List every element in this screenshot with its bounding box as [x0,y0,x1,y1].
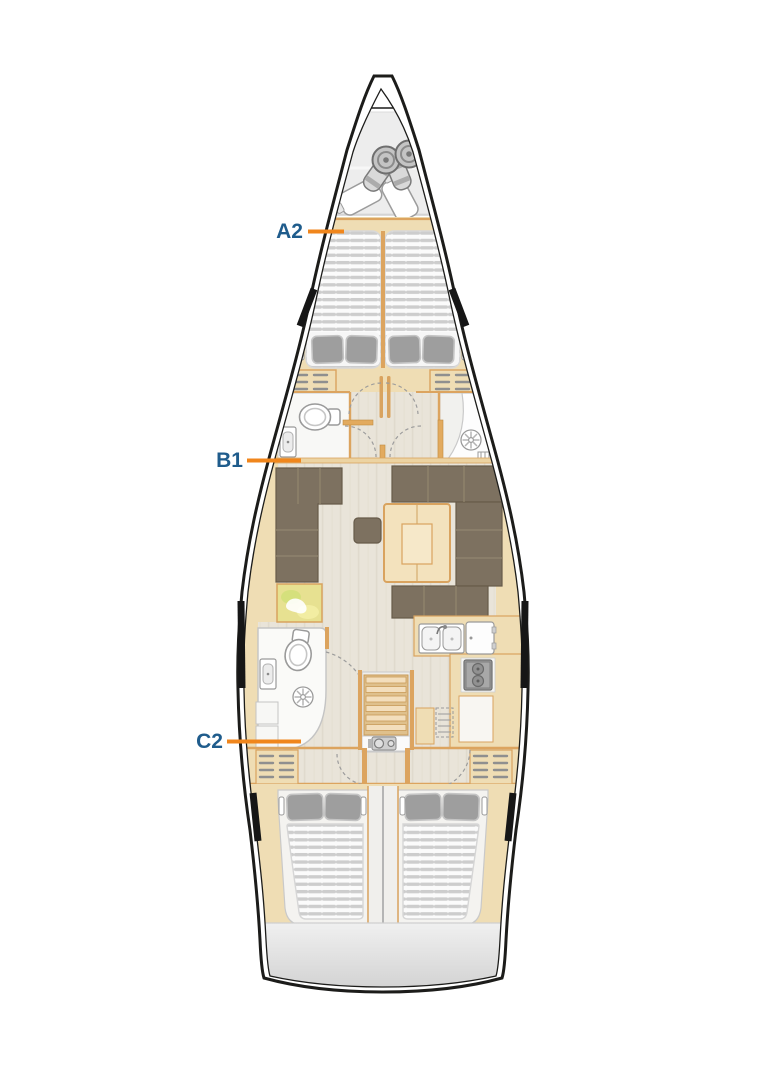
latch-mark [361,797,366,815]
door-post [387,376,391,418]
door-post [380,376,384,418]
salon-table [384,504,450,582]
leader-line [227,740,301,744]
cabinet [416,708,434,744]
locker-front [256,726,278,748]
latch-mark [482,797,487,815]
aft-mattress [287,824,363,919]
leader-line [247,459,301,463]
pillow [346,335,378,363]
aft-mattress [403,824,479,919]
cabin-label: B1 [216,449,243,472]
hull-window [524,601,525,688]
cabin-label: A2 [276,220,303,243]
pouf [354,518,381,543]
pillow [423,335,455,363]
chart-table [277,584,322,622]
hull-window [253,793,258,841]
engine-icon [368,737,396,750]
shower-drain-icon [461,430,481,450]
pillow [405,793,442,820]
door-leaf [343,420,373,425]
pillow [312,335,344,363]
pillow [325,793,362,820]
aft-cabins [240,784,532,932]
yacht-layout-page: A2 B1 C2 [0,0,764,1080]
galley-sink-icon [419,624,464,653]
cabin-label: C2 [196,730,223,753]
center-divider [381,231,385,368]
stove-icon [461,658,495,692]
latch-mark [279,797,284,815]
pillow [443,793,480,820]
latch-mark [400,797,405,815]
door-leaf [438,420,443,458]
hull-window [241,601,242,688]
leader-line [308,230,344,234]
shower-drain-icon [293,687,313,707]
sink-icon [260,659,276,689]
hull-window [508,793,513,841]
locker-front [256,702,278,724]
pillow [287,793,324,820]
galley-locker-front [459,696,493,742]
pillow [389,335,421,363]
yacht-layout-diagram: A2 B1 C2 [0,0,764,1080]
fridge-icon [466,622,496,654]
